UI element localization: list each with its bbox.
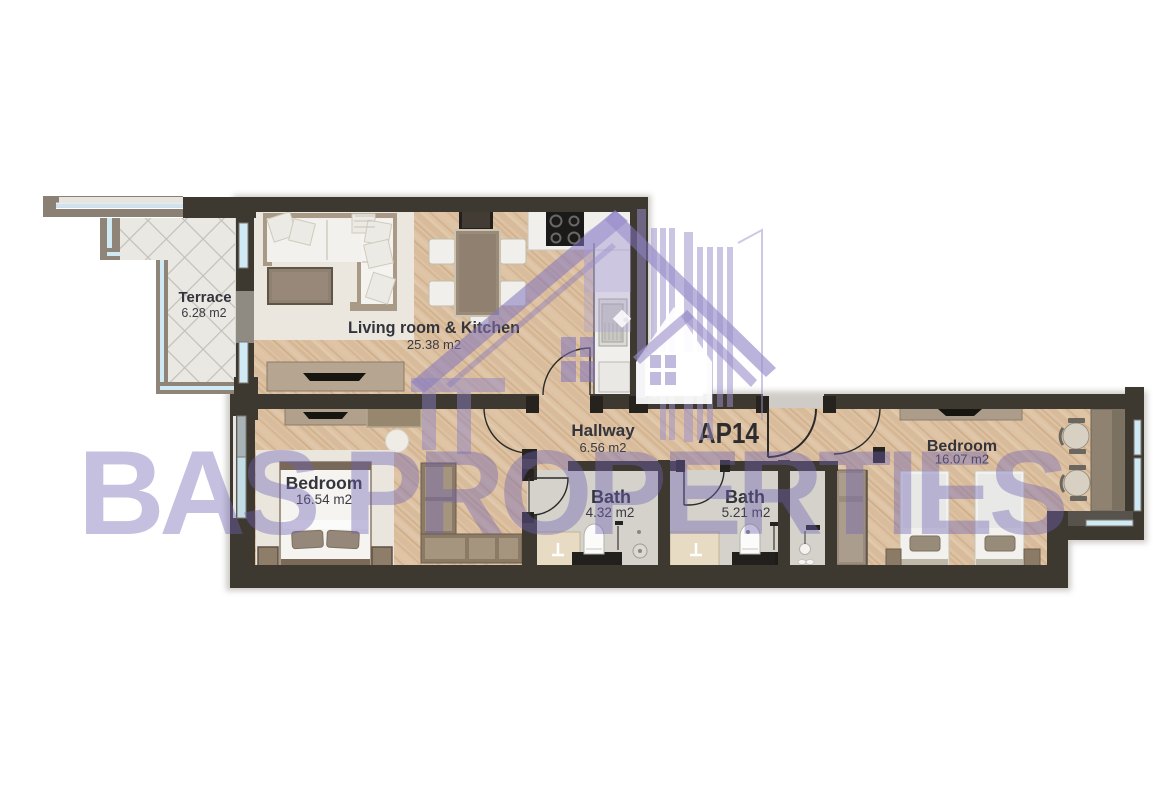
svg-text:BAS PROPERTIES: BAS PROPERTIES [78,426,1065,560]
svg-text:Terrace: Terrace [178,289,231,306]
svg-text:6.28 m2: 6.28 m2 [181,306,226,320]
